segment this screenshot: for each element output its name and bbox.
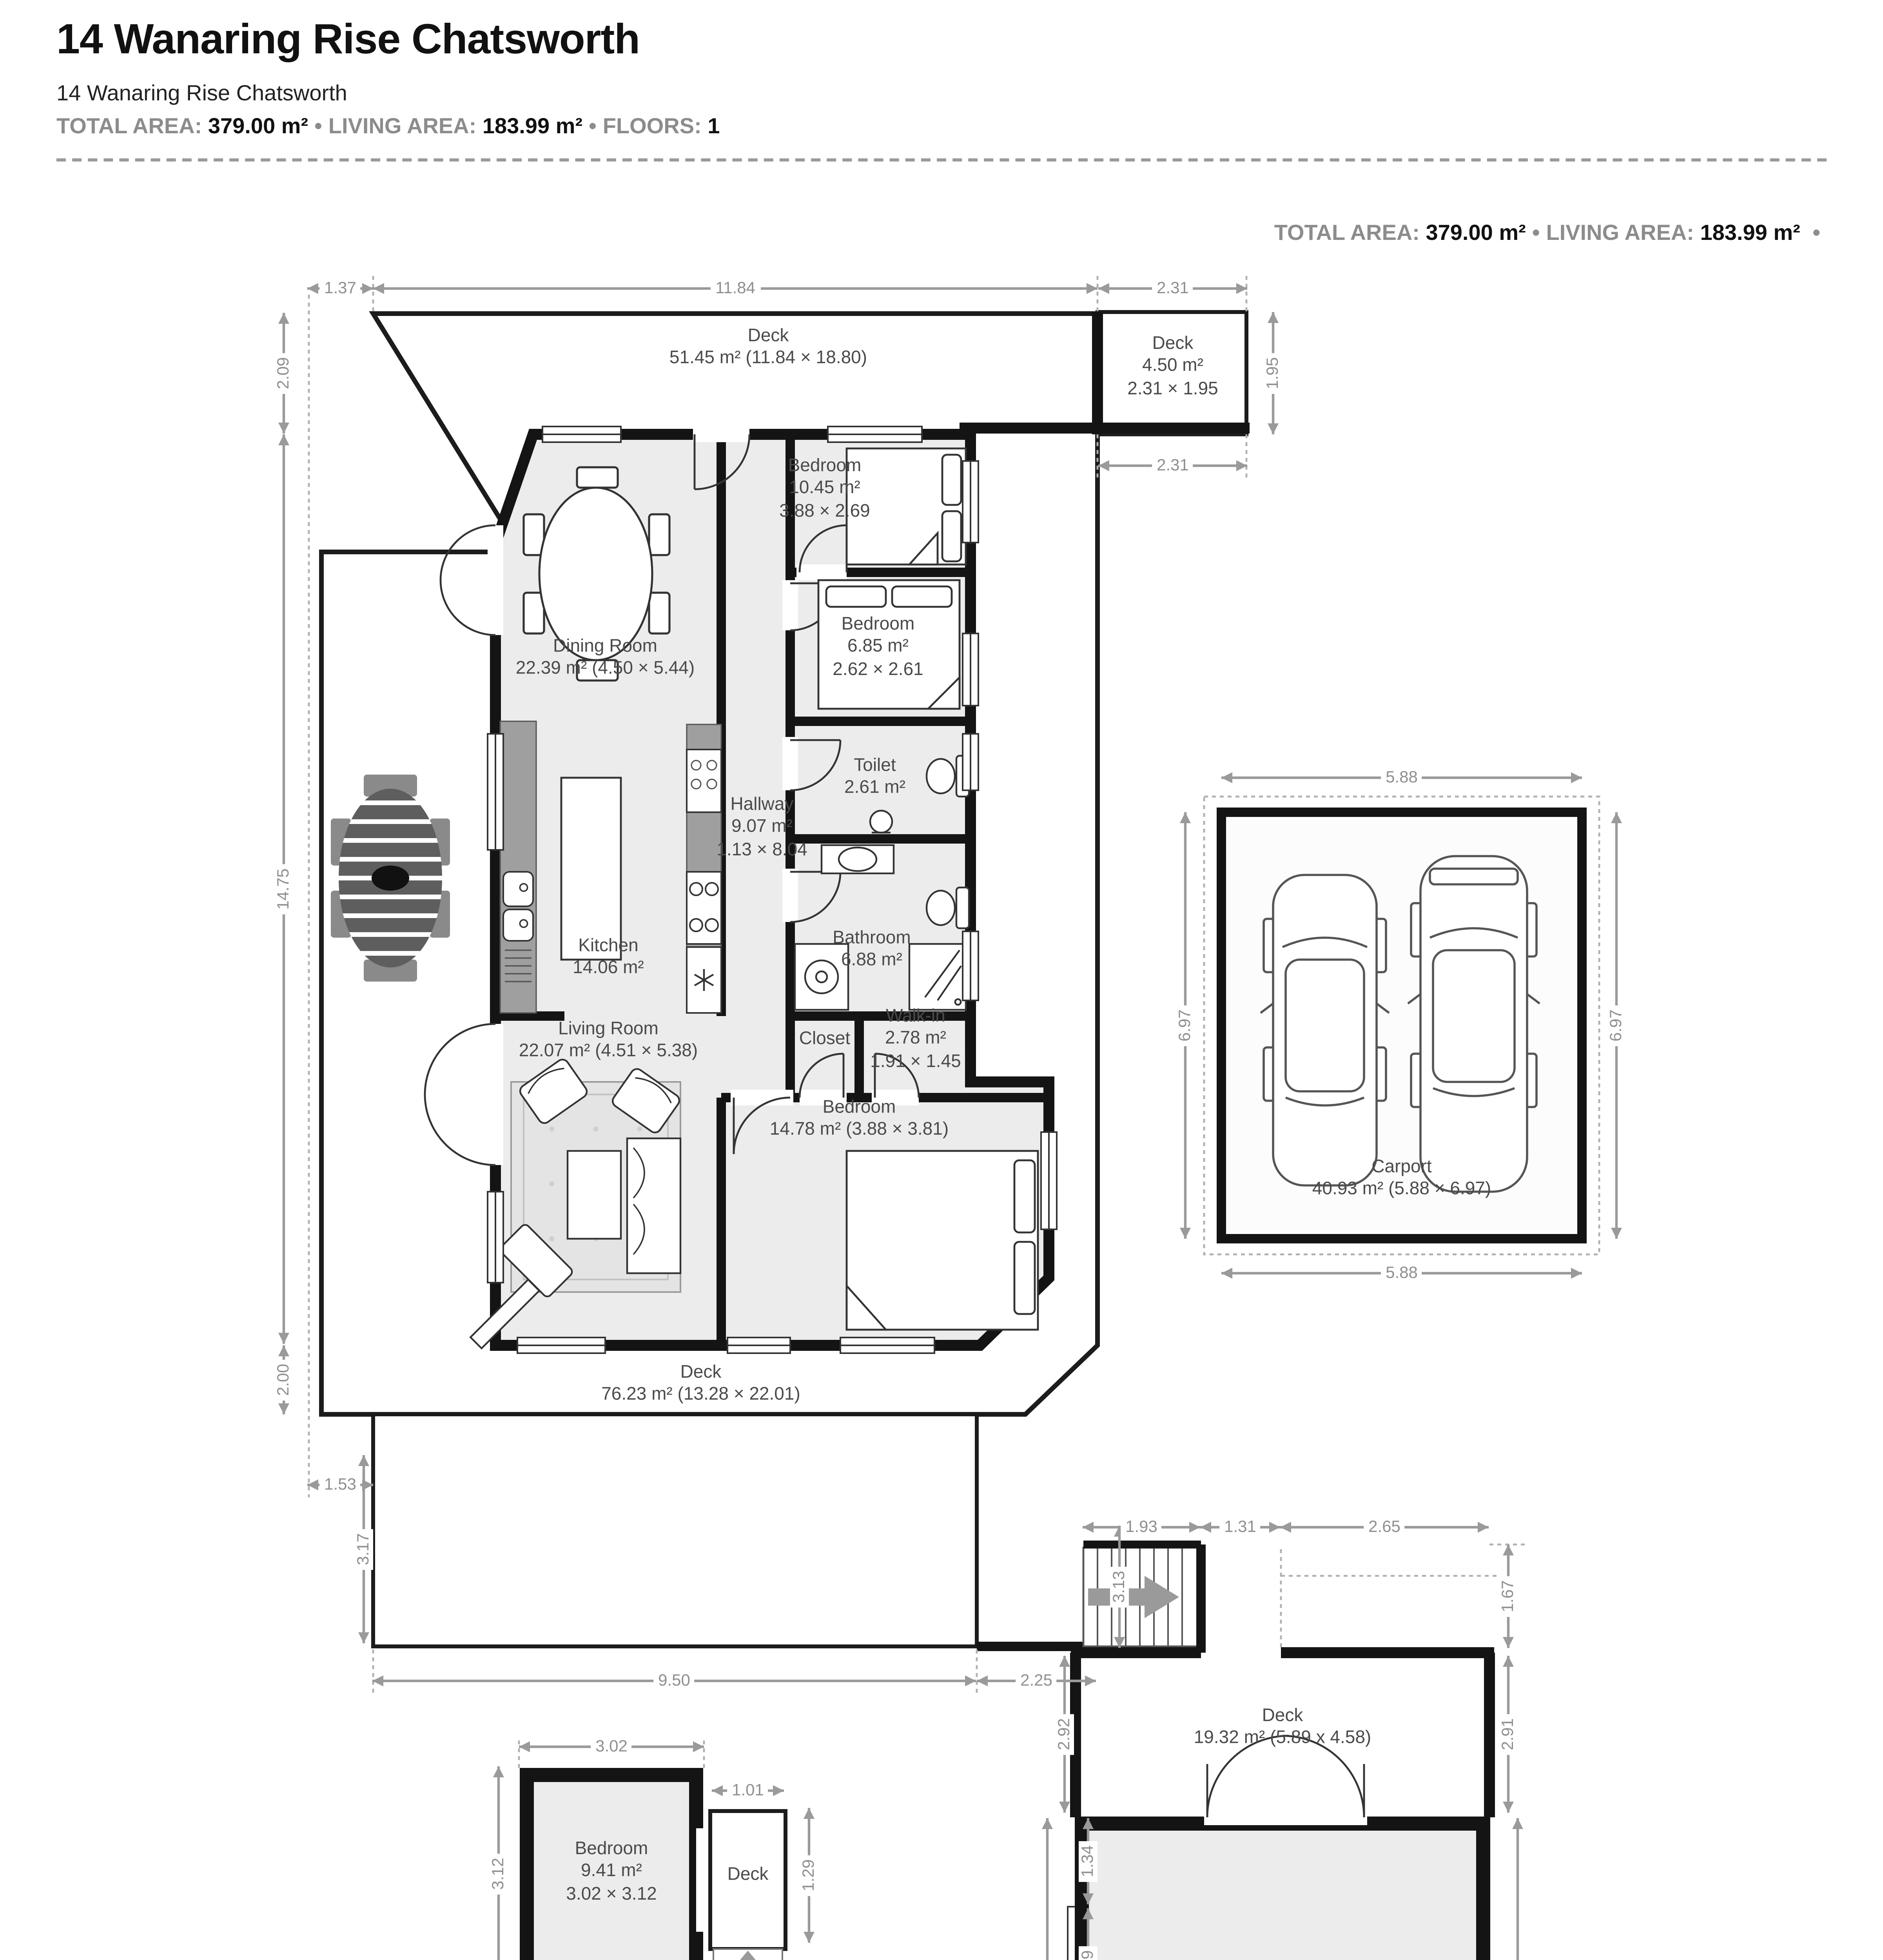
floorplan-drawing xyxy=(0,0,1883,1960)
bottom-right-section xyxy=(1071,1653,1494,1960)
car-icon xyxy=(1408,856,1540,1192)
window-icon xyxy=(517,1338,605,1353)
window-icon xyxy=(963,931,978,1000)
window-icon xyxy=(488,734,503,850)
main-stairs xyxy=(1083,1544,1201,1653)
bedroom-block-1 xyxy=(527,1775,785,1960)
window-icon xyxy=(488,1192,503,1283)
plan-living-area-label: LIVING AREA: xyxy=(1546,220,1694,245)
window-icon xyxy=(840,1338,934,1353)
separator: • xyxy=(582,113,603,138)
floors-value: 1 xyxy=(707,113,720,138)
bed-icon-1478 xyxy=(847,1151,1038,1330)
page-title: 14 Wanaring Rise Chatsworth xyxy=(56,16,640,64)
separator: • xyxy=(1806,220,1827,245)
separator: • xyxy=(308,113,328,138)
dashed-divider-top xyxy=(56,158,1827,162)
window-icon xyxy=(828,426,922,442)
bed-icon-1045 xyxy=(847,448,966,564)
window-icon xyxy=(963,734,978,790)
car-icon xyxy=(1261,875,1389,1185)
window-icon xyxy=(963,633,978,706)
screenshot-stage: 14 Wanaring Rise Chatsworth 14 Wanaring … xyxy=(0,0,1883,1960)
plan-area-info: TOTAL AREA: 379.00 m²•LIVING AREA: 183.9… xyxy=(1274,220,1827,245)
total-area-value: 379.00 m² xyxy=(208,113,308,138)
bed-icon-685 xyxy=(818,580,960,709)
separator: • xyxy=(1526,220,1546,245)
plan-total-area-value: 379.00 m² xyxy=(1426,220,1526,245)
plan-total-area-label: TOTAL AREA: xyxy=(1274,220,1420,245)
window-icon xyxy=(963,461,978,543)
area-info-line: TOTAL AREA: 379.00 m²•LIVING AREA: 183.9… xyxy=(56,113,720,138)
address-line: 14 Wanaring Rise Chatsworth xyxy=(56,80,347,105)
window-icon xyxy=(727,1338,790,1353)
plan-living-area-value: 183.99 m² xyxy=(1700,220,1800,245)
floorplan-page: 14 Wanaring Rise Chatsworth 14 Wanaring … xyxy=(0,0,1883,1960)
carport-group xyxy=(1204,797,1599,1254)
living-area-value: 183.99 m² xyxy=(483,113,582,138)
window-icon xyxy=(1041,1132,1057,1229)
total-area-label: TOTAL AREA: xyxy=(56,113,202,138)
floors-label: FLOORS: xyxy=(603,113,702,138)
living-area-label: LIVING AREA: xyxy=(328,113,477,138)
window-icon xyxy=(542,426,621,442)
